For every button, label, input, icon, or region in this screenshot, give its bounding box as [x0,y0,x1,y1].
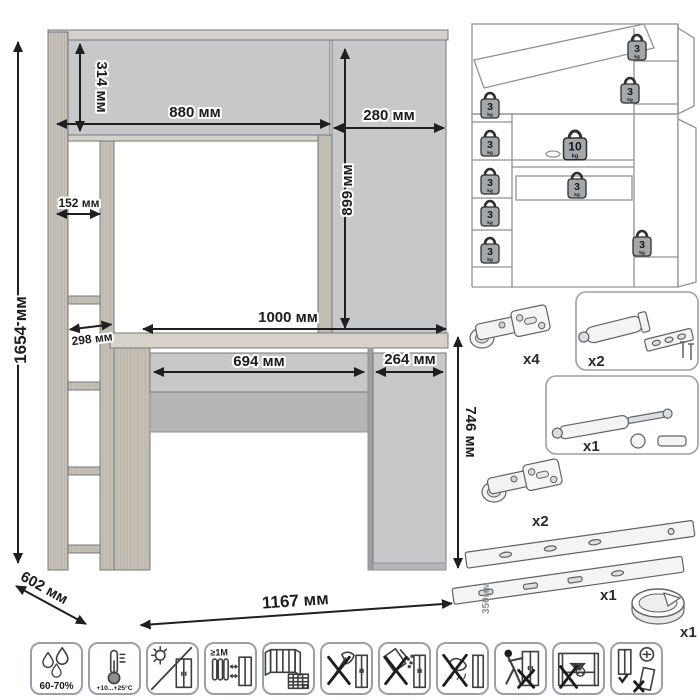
diagram-canvas: 1654 мм 314 мм 880 мм 280 мм 899 мм 152 … [0,0,700,640]
weight-value: 3 [574,181,580,193]
weight-unit: kg [487,188,493,194]
hutch-top-board [48,30,448,40]
weight-icon-10kg: 10 kg [564,131,587,160]
vent-days-label: 21 [302,684,308,690]
shelf-2 [68,382,100,390]
temperature-range-label: +10...+25°С [96,684,132,692]
weight-icon: 3 kg [621,78,639,103]
dim-shelf-width: 152 мм [58,196,99,210]
humidity-range-label: 60-70% [39,681,73,692]
weight-value: 3 [487,209,493,221]
care-icon-temperature: +10...+25°С [88,642,141,695]
shelf-4 [68,545,100,553]
care-icon-no-wet-cleaning [436,642,489,695]
care-icon-no-dragging [494,642,547,695]
desktop [110,333,448,348]
weight-unit: kg [572,154,578,160]
damper-qty: x2 [588,353,605,370]
shelf-1 [68,296,100,304]
weight-unit: kg [487,112,493,118]
shelf-column-upright [100,141,114,570]
weight-unit: kg [634,54,640,60]
care-icon-anchor-to-wall [610,642,663,695]
weight-icon: 3 kg [568,173,586,198]
weight-value: 3 [487,177,493,189]
gas-lift-fitting-2 [658,436,686,446]
weight-unit: kg [574,192,580,198]
slides-qty: x1 [600,587,617,604]
dim-hutch-width: 880 мм [169,104,220,121]
care-icon-no-sharp-impact [320,642,373,695]
care-icon-no-overload [552,642,605,695]
hinge-top-qty: x4 [523,351,540,368]
slides-length-label: 350мм [481,583,492,614]
weight-icon: 3 kg [481,93,499,118]
weight-value: 3 [487,139,493,151]
care-icons-row: 60-70% +10...+25°С ≥1М [30,642,663,695]
dim-door-width: 264 мм [384,351,435,368]
gas-lift-fitting-1 [631,434,645,448]
desk-left-side-panel [114,348,150,570]
shelf-3 [68,467,100,475]
weight-value: 10 [568,140,582,154]
pedestal-base [373,563,446,570]
weight-icon: 3 kg [481,131,499,156]
cable-hole [546,151,560,157]
weight-value: 3 [487,246,493,258]
pedestal-door [373,353,446,563]
weight-value: 3 [634,43,640,55]
total-width-group: 1167 мм [139,580,452,625]
min-distance-label: ≥1М [211,647,228,657]
gas-lift-qty: x1 [583,438,600,455]
care-icon-heat-distance: ≥1М [204,642,257,695]
care-icon-no-abrasives [378,642,431,695]
weight-unit: kg [639,250,645,256]
dim-desktop-width: 1000 мм [258,309,318,326]
weight-value: 3 [627,86,633,98]
hardware-section: x4 x2 x1 x2 [452,292,698,640]
dim-top-cab-width: 280 мм [363,107,414,124]
weight-unit: kg [627,97,633,103]
grommet-icon [632,589,684,624]
care-icon-ventilation: 21 [262,642,315,695]
weight-value: 3 [487,101,493,113]
dim-hutch-height: 314 мм [93,61,110,112]
care-icon-avoid-sunlight [146,642,199,695]
opening-right-upright [318,135,332,333]
dim-total-height: 1654 мм [11,296,30,364]
dim-drawer-width: 694 мм [233,353,284,370]
load-open-door-top [678,28,694,114]
weight-icon: 3 kg [481,238,499,263]
desk-back-panel [150,392,368,432]
weight-value: 3 [639,239,645,251]
hinge-icon [470,304,551,348]
dim-top-cab-height: 899 мм [339,164,356,215]
dim-desk-height: 746 мм [462,406,479,457]
hutch-bottom-board [68,135,318,141]
hinge-bottom-qty: x2 [532,513,549,530]
grommet-qty: x1 [680,624,697,640]
care-icon-humidity: 60-70% [30,642,83,695]
assembly-diagram-page: 1654 мм 314 мм 880 мм 280 мм 899 мм 152 … [0,0,700,700]
weight-unit: kg [487,150,493,156]
pedestal-left-edge [368,348,373,570]
weight-icon: 3 kg [481,201,499,226]
left-side-panel [48,32,68,570]
weight-unit: kg [487,220,493,226]
dim-total-width: 1167 мм [261,589,329,613]
load-open-door-bottom [678,119,696,287]
weight-icon: 3 kg [633,231,651,256]
hinge-icon [482,458,563,502]
weight-icon: 3 kg [481,169,499,194]
weight-unit: kg [487,257,493,263]
